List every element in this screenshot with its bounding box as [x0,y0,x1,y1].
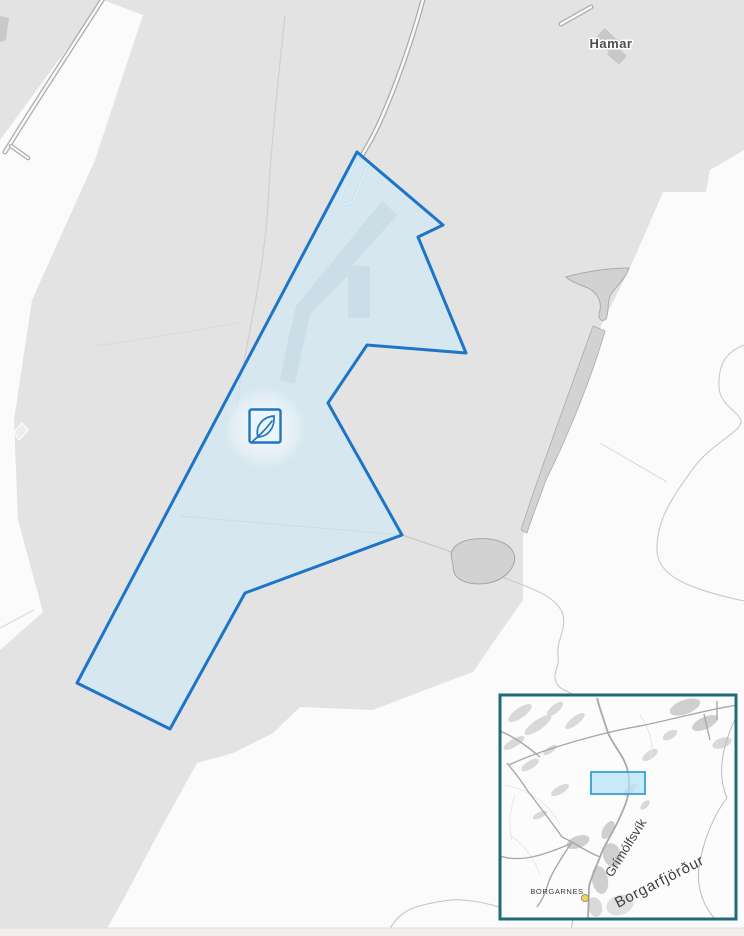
inset-label-town: BORGARNES [530,887,583,896]
overview-inset-map[interactable]: BORGARNES Grímólfsvík Borgarfjörður [500,695,737,923]
bottom-strip [0,928,744,936]
protected-area-marker[interactable] [250,410,281,443]
map-canvas[interactable]: Hamar [0,0,744,936]
map-viewport[interactable]: Hamar [0,0,744,936]
inset-viewport-rectangle[interactable] [591,772,645,794]
place-label-hamar: Hamar [590,36,633,51]
